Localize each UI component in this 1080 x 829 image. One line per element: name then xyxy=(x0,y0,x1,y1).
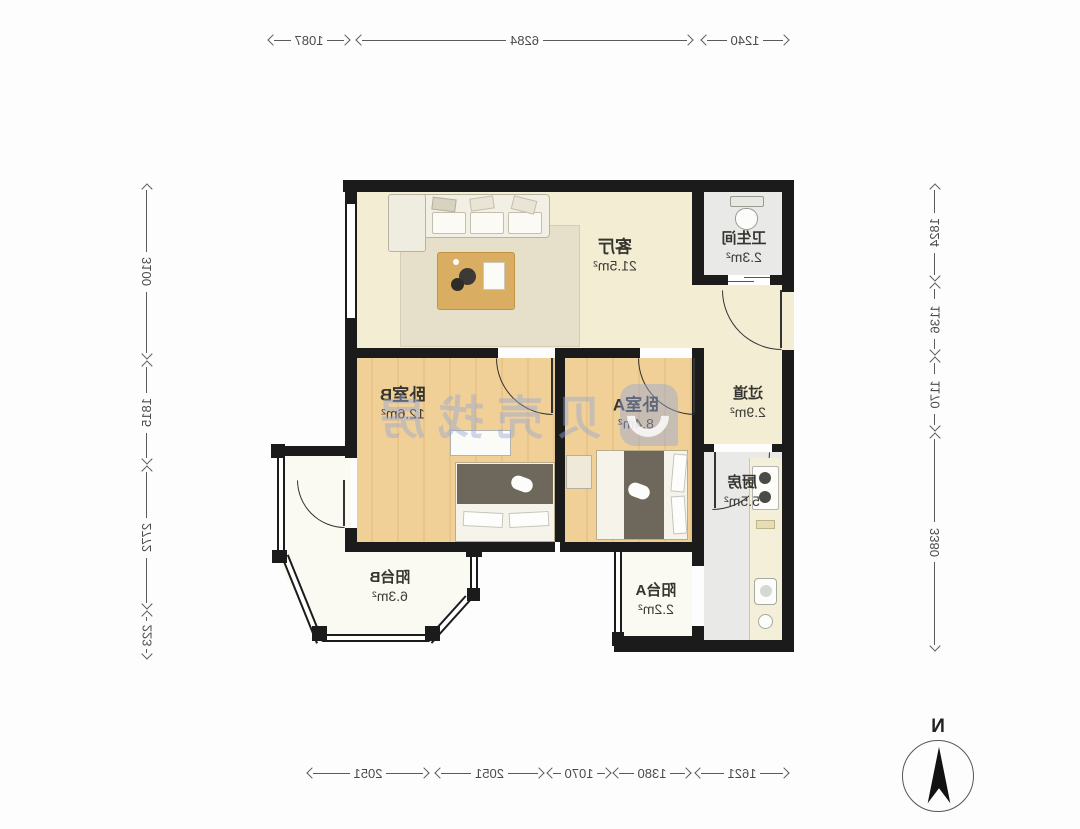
dim-value: 1087 xyxy=(291,33,328,48)
balcony-a-post xyxy=(612,632,624,646)
wall-divider-b xyxy=(555,348,640,358)
dim-value: 1136 xyxy=(928,305,943,333)
bathroom-label: 卫生间 2.3m² xyxy=(721,230,766,266)
dim-value: 1380 xyxy=(634,766,671,781)
bay-post-se xyxy=(312,626,327,641)
wall-bedroom-b-bottom xyxy=(345,542,555,552)
toilet-tank xyxy=(730,196,764,207)
living-room-area: 21.5m² xyxy=(593,258,637,276)
dim-value: 1070 xyxy=(561,766,598,781)
hallway-name: 过道 xyxy=(730,385,766,404)
bay-post-e xyxy=(272,550,287,563)
coffee-table-tray xyxy=(483,262,505,290)
balcony-b-area: 6.3m² xyxy=(370,588,411,606)
bay-window-bottom xyxy=(322,634,432,642)
sink-basin xyxy=(760,585,772,597)
bay-post-sw xyxy=(425,626,440,641)
bed-b-pillow xyxy=(463,511,504,528)
beike-logo-icon xyxy=(620,384,678,446)
dim-value: 6284 xyxy=(506,33,543,48)
dim-left-4: 3380 xyxy=(928,434,942,650)
wall-balcony-a-stub-top xyxy=(692,552,704,566)
wall-top xyxy=(343,180,794,192)
dim-value: 1824 xyxy=(927,218,942,247)
compass-north-arrow-icon xyxy=(918,745,960,805)
compass: N xyxy=(896,716,980,812)
stove-burner xyxy=(759,491,771,503)
bedroom-a-door-leaf xyxy=(693,358,695,413)
entry-threshold-floor xyxy=(782,292,794,350)
dim-value: 1170 xyxy=(928,380,943,408)
dim-top-1: 1240 xyxy=(702,33,788,47)
wall-kitchen-bottom xyxy=(692,640,794,652)
hallway-area: 2.9m² xyxy=(730,404,766,422)
dim-top-3: 1087 xyxy=(269,33,349,47)
dim-bottom-4: 2051 xyxy=(436,766,543,780)
dim-value: 2051 xyxy=(471,766,508,781)
floorplan-canvas: 客厅 21.5m² 卫生间 2.3m² 过道 2.9m² 厨房 5.5m² 卧室… xyxy=(0,0,1080,829)
balcony-a-label: 阳台A 2.2m² xyxy=(636,582,677,618)
bed-b-blanket xyxy=(457,464,553,504)
dim-bottom-5: 2051 xyxy=(308,766,428,780)
sofa-cushion xyxy=(470,212,504,234)
entry-door-leaf xyxy=(780,290,782,348)
dim-left-1: 1824 xyxy=(928,185,942,280)
kitchen-label: 厨房 5.5m² xyxy=(724,474,760,510)
dim-bottom-1: 1621 xyxy=(696,766,788,780)
bay-post-nw xyxy=(466,544,482,557)
wall-right-top xyxy=(345,180,357,204)
dim-right-4: 223 xyxy=(140,612,154,658)
dim-value: 2051 xyxy=(350,766,387,781)
balcony-a-window xyxy=(614,552,622,636)
toilet-bowl xyxy=(735,208,758,230)
bed-b-pillow xyxy=(509,511,550,528)
hallway-label: 过道 2.9m² xyxy=(730,385,766,421)
wall-right-mid xyxy=(345,318,357,458)
balcony-a-name: 阳台A xyxy=(636,582,677,601)
wall-kitchen-north-right xyxy=(702,444,714,452)
hallway-passage-floor xyxy=(692,285,704,348)
wall-bedroom-a-bottom xyxy=(560,542,694,552)
dim-right-2: 1815 xyxy=(140,362,154,463)
bed-a-pillow xyxy=(671,496,688,535)
bathroom-name: 卫生间 xyxy=(721,230,766,249)
compass-circle xyxy=(902,740,974,812)
living-room-name: 客厅 xyxy=(593,237,637,258)
balcony-b-door-leaf xyxy=(343,480,345,526)
bedroom-a-nightstand xyxy=(566,455,592,489)
bay-post-w xyxy=(467,588,480,601)
dim-value: 2772 xyxy=(139,523,154,552)
dim-bottom-3: 1070 xyxy=(548,766,610,780)
coffee-table-bowl xyxy=(451,278,464,291)
kitchen-area: 5.5m² xyxy=(724,493,760,511)
dim-value: 1621 xyxy=(724,766,761,781)
balcony-a-area: 2.2m² xyxy=(636,601,677,619)
dim-bottom-2: 1380 xyxy=(614,766,690,780)
dim-top-2: 6284 xyxy=(357,33,692,47)
wall-left-lower xyxy=(782,350,794,652)
dim-value: 3380 xyxy=(927,528,942,557)
watermark-text: 贝壳找房 xyxy=(366,382,602,448)
kitchen-item xyxy=(756,520,775,529)
stove-burner xyxy=(759,472,771,484)
balcony-b-name: 阳台B xyxy=(370,569,411,588)
dim-value: 1240 xyxy=(727,33,764,48)
dim-left-3: 1170 xyxy=(928,358,942,430)
mirrored-floorplan: 客厅 21.5m² 卫生间 2.3m² 过道 2.9m² 厨房 5.5m² 卧室… xyxy=(0,0,1080,829)
wall-kitchen-north-left xyxy=(772,444,782,452)
watermark: 贝壳找房 xyxy=(366,382,678,448)
dim-value: 1815 xyxy=(139,398,154,427)
sofa-pillow xyxy=(431,197,456,213)
wall-bathroom-bottom-right xyxy=(702,275,730,285)
sofa-cushion xyxy=(432,212,466,234)
sofa-chaise xyxy=(388,194,426,252)
dim-right-1: 3100 xyxy=(140,185,154,358)
kitchen-door-leaf xyxy=(714,452,716,508)
dim-value: 223 xyxy=(139,624,154,646)
bathroom-area: 2.3m² xyxy=(721,249,766,267)
bathroom-sliding-door xyxy=(728,275,770,285)
dim-left-2: 1136 xyxy=(928,284,942,354)
living-room-label: 客厅 21.5m² xyxy=(593,237,637,276)
wall-bathroom-bottom-left xyxy=(768,275,794,285)
balcony-b-label: 阳台B 6.3m² xyxy=(370,569,411,605)
wall-divider-c xyxy=(345,348,498,358)
sofa-cushion xyxy=(508,212,542,234)
living-room-window xyxy=(345,204,357,318)
sink-drain xyxy=(758,614,773,629)
bay-window-east xyxy=(277,456,285,556)
kitchen-name: 厨房 xyxy=(724,474,760,493)
compass-north-label: N xyxy=(896,716,980,738)
dim-right-3: 2772 xyxy=(140,467,154,608)
dim-value: 3100 xyxy=(139,257,154,286)
wall-balcony-a-bottom xyxy=(614,636,694,652)
wall-bathroom-east xyxy=(692,180,704,285)
coffee-table-decor xyxy=(453,259,459,265)
bay-post-ne xyxy=(271,444,285,458)
